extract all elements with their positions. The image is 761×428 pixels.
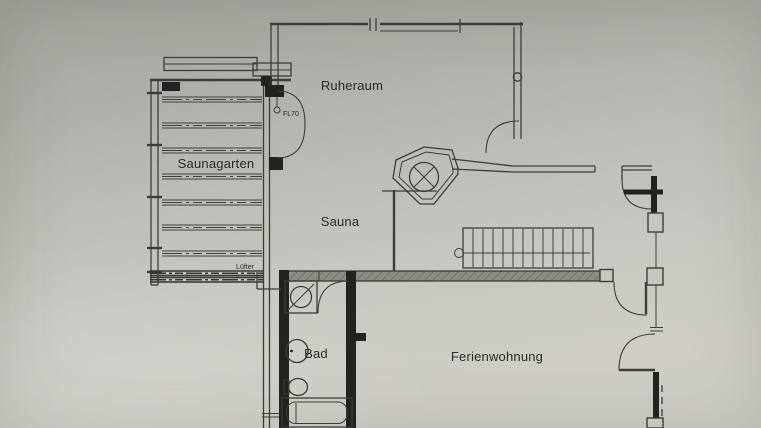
annotation-luefter: Lüfter bbox=[236, 264, 255, 271]
vent-duct-icon bbox=[232, 271, 281, 289]
door-swing-icon-south bbox=[614, 282, 647, 315]
east-wall-windows bbox=[647, 213, 663, 331]
staircase-icon bbox=[455, 228, 594, 268]
east-wall-lower bbox=[647, 372, 663, 428]
room-label-bad: Bad bbox=[304, 346, 328, 361]
door-swing-icon-bad bbox=[318, 281, 349, 313]
floor-plan-drawing: Ruheraum Saunagarten Sauna Bad Ferienwoh… bbox=[0, 0, 761, 428]
saunagarten-wall-west bbox=[147, 79, 162, 285]
louver-decking-icon bbox=[150, 97, 263, 282]
room-label-ferienwohnung: Ferienwohnung bbox=[451, 349, 543, 364]
entrance-door-east bbox=[622, 166, 663, 213]
shower-icon bbox=[285, 281, 317, 313]
ferienwohnung-north-wall bbox=[513, 166, 595, 172]
bathtub-icon bbox=[282, 398, 352, 427]
south-wall bbox=[283, 270, 613, 282]
ruheraum-walls bbox=[270, 18, 523, 139]
room-label-sauna: Sauna bbox=[321, 214, 360, 229]
room-label-ruheraum: Ruheraum bbox=[321, 78, 383, 93]
annotation-fl70: FL70 bbox=[283, 111, 299, 118]
floor-plan: Ruheraum Saunagarten Sauna Bad Ferienwoh… bbox=[0, 0, 761, 428]
door-swing-icon-east bbox=[619, 334, 655, 370]
door-swing-icon-fl70 bbox=[274, 91, 305, 158]
room-label-saunagarten: Saunagarten bbox=[178, 156, 255, 171]
